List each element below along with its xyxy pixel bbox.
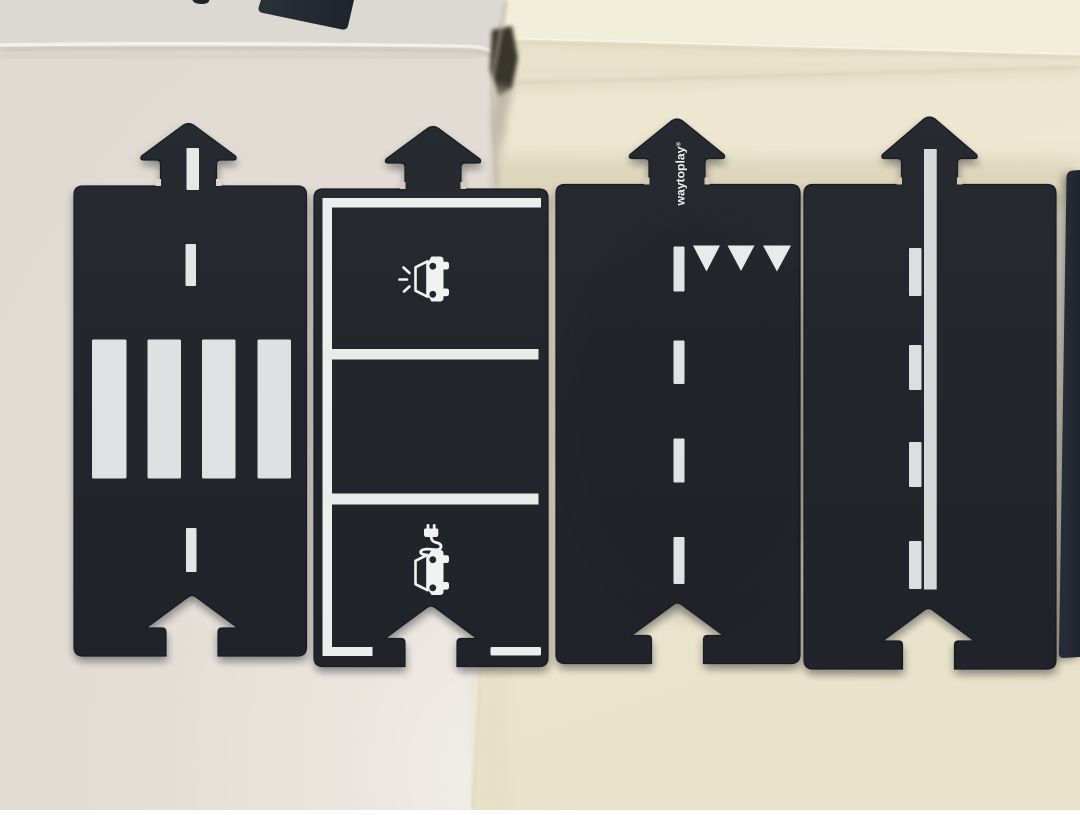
svg-text:waytoplay®: waytoplay® bbox=[674, 142, 688, 207]
